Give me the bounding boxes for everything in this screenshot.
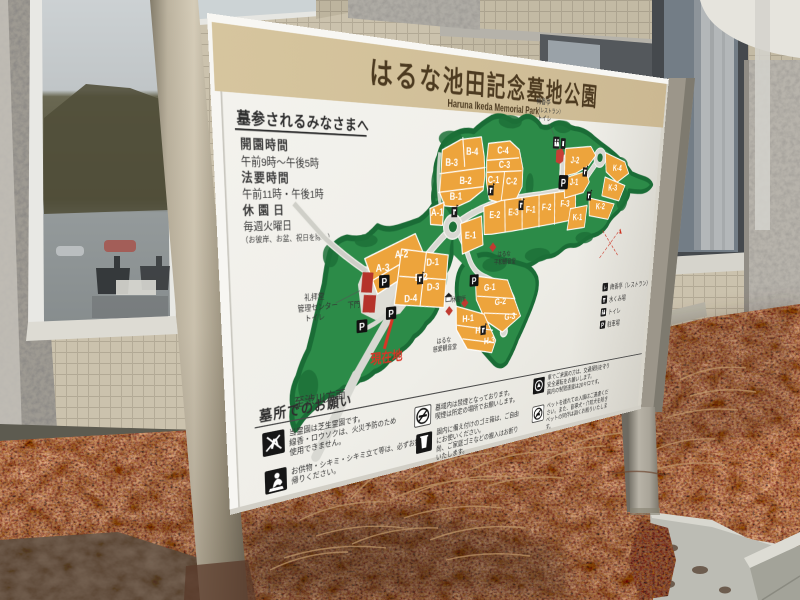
svg-text:午前9時〜午後5時: 午前9時〜午後5時 <box>241 154 319 170</box>
svg-text:J-1: J-1 <box>569 177 578 187</box>
svg-text:J-2: J-2 <box>570 155 579 166</box>
svg-text:D-3: D-3 <box>427 281 440 293</box>
svg-text:開園時間: 開園時間 <box>240 136 289 153</box>
svg-text:G-1: G-1 <box>484 282 496 294</box>
svg-text:F-1: F-1 <box>526 205 536 216</box>
svg-text:K-1: K-1 <box>572 213 582 223</box>
svg-text:レ: レ <box>603 285 607 291</box>
svg-text:法要時間: 法要時間 <box>241 169 290 185</box>
svg-text:P: P <box>359 321 365 333</box>
svg-text:A-3: A-3 <box>376 262 390 275</box>
svg-text:P: P <box>601 321 605 329</box>
svg-text:P: P <box>560 176 566 189</box>
svg-text:トイレ: トイレ <box>537 115 551 124</box>
svg-text:休園日: 休園日 <box>242 202 289 218</box>
svg-text:P: P <box>472 276 477 287</box>
svg-text:A-2: A-2 <box>395 249 408 261</box>
svg-text:C-4: C-4 <box>497 145 509 157</box>
svg-text:G-3: G-3 <box>504 311 515 322</box>
svg-text:A-1: A-1 <box>431 207 444 219</box>
svg-text:G-2: G-2 <box>495 296 507 307</box>
svg-text:E-2: E-2 <box>489 210 500 221</box>
svg-text:D-1: D-1 <box>426 257 439 269</box>
svg-text:F-3: F-3 <box>560 199 570 209</box>
svg-text:はるな: はるな <box>497 250 510 257</box>
svg-text:B-1: B-1 <box>450 191 463 203</box>
svg-text:C-3: C-3 <box>499 159 511 170</box>
svg-text:E-1: E-1 <box>465 230 477 242</box>
svg-text:毎週火曜日: 毎週火曜日 <box>243 219 292 233</box>
svg-text:K-3: K-3 <box>608 183 617 193</box>
svg-text:B-4: B-4 <box>466 146 478 158</box>
svg-text:E-3: E-3 <box>508 207 519 218</box>
svg-text:下門: 下門 <box>347 300 360 310</box>
svg-text:D-4: D-4 <box>404 293 417 306</box>
svg-text:休憩所: 休憩所 <box>451 295 465 304</box>
svg-text:P: P <box>381 276 387 288</box>
svg-text:K-4: K-4 <box>613 163 622 173</box>
svg-text:午前11時・午後1時: 午前11時・午後1時 <box>242 187 324 201</box>
svg-text:B-3: B-3 <box>445 157 458 169</box>
svg-text:H-3: H-3 <box>484 335 495 347</box>
svg-text:C-2: C-2 <box>506 176 517 187</box>
svg-text:H-1: H-1 <box>462 313 474 325</box>
svg-text:P: P <box>388 308 394 320</box>
svg-text:F-2: F-2 <box>542 202 552 213</box>
svg-text:B-2: B-2 <box>459 175 471 187</box>
svg-text:K-2: K-2 <box>596 202 606 212</box>
